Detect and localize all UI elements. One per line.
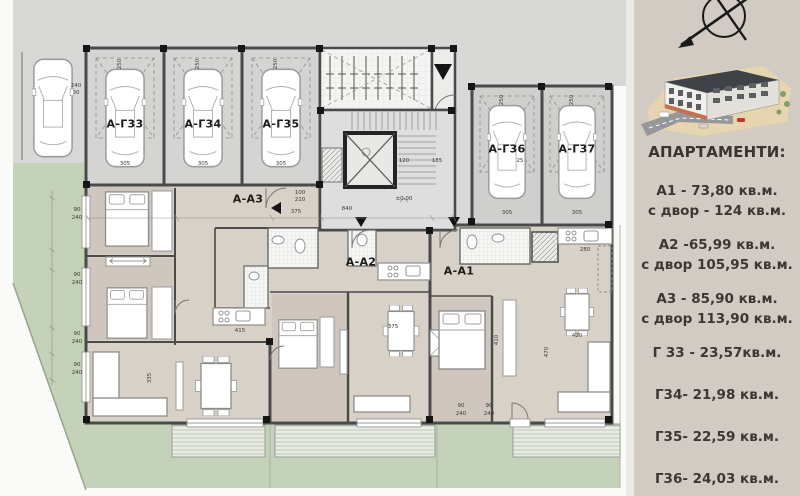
apartment-list: А1 - 73,80 кв.м.с двор - 124 кв.м.А2 -65… xyxy=(634,181,800,496)
apartment-list-item: А2 -65,99 кв.м.с двор 105,95 кв.м. xyxy=(634,235,800,275)
apartment-list-item: Г 33 - 23,57кв.м. xyxy=(634,343,800,363)
bike-room xyxy=(320,48,455,110)
tv-unit xyxy=(176,362,183,410)
sink xyxy=(272,236,284,244)
apartment-area-text: Г35- 22,59 кв.м. xyxy=(634,427,800,447)
bed xyxy=(106,192,149,246)
bed xyxy=(279,320,317,368)
apartment-area-text: А2 -65,99 кв.м. xyxy=(634,235,800,255)
tv-unit xyxy=(340,330,347,374)
info-sidebar: АПАРТАМЕНТИ: А1 - 73,80 кв.м.с двор - 12… xyxy=(634,0,800,496)
garage-car xyxy=(182,69,224,166)
dining-table xyxy=(561,288,594,336)
sofa xyxy=(558,392,610,412)
floor-plan-svg xyxy=(0,0,634,496)
wardrobe xyxy=(152,191,172,251)
toilet xyxy=(357,234,367,246)
shower xyxy=(532,232,558,262)
sofa xyxy=(93,398,167,416)
terraces xyxy=(172,425,620,457)
garage-car xyxy=(260,69,302,166)
sofa xyxy=(588,342,610,394)
dining-table xyxy=(195,356,236,416)
apartment-list-item: А1 - 73,80 кв.м.с двор - 124 кв.м. xyxy=(634,181,800,221)
storage-room xyxy=(322,148,342,182)
dining-table xyxy=(383,305,419,357)
stair-hall xyxy=(320,110,455,230)
garage-car xyxy=(104,69,146,166)
apartment-list-item: Г35- 22,59 кв.м. xyxy=(634,427,800,447)
apartments-heading: АПАРТАМЕНТИ: xyxy=(634,143,800,161)
apartment-yard-text: с двор 105,95 кв.м. xyxy=(634,255,800,275)
sink xyxy=(492,234,504,242)
apartment-area-text: Г 33 - 23,57кв.м. xyxy=(634,343,800,363)
elevator xyxy=(345,133,395,187)
wardrobe xyxy=(152,287,172,339)
apartment-list-item: Г34- 21,98 кв.м. xyxy=(634,385,800,405)
bed xyxy=(439,311,485,369)
apartment-list-item: Г36- 24,03 кв.м. xyxy=(634,469,800,489)
apartment-area-text: Г34- 21,98 кв.м. xyxy=(634,385,800,405)
apartment-area-text: А3 - 85,90 кв.м. xyxy=(634,289,800,309)
sofa xyxy=(354,396,410,412)
apartment-area-text: А1 - 73,80 кв.м. xyxy=(634,181,800,201)
apartment-yard-text: с двор 113,90 кв.м. xyxy=(634,309,800,329)
garage-block-left xyxy=(86,48,320,185)
garage-car xyxy=(557,106,597,199)
toilet xyxy=(295,239,305,253)
sink xyxy=(249,272,259,280)
wardrobe xyxy=(320,317,334,367)
floor-plan: А-Г33А-Г34А-Г35А-Г36А-Г37А-А3А-А2А-А1305… xyxy=(0,0,634,496)
apartment-yard-text: с двор - 124 кв.м. xyxy=(634,201,800,221)
bed xyxy=(107,288,147,338)
parked-car xyxy=(32,59,74,156)
page-gutter xyxy=(626,0,634,496)
building-render xyxy=(641,52,793,138)
floor-plan-page: А-Г33А-Г34А-Г35А-Г36А-Г37А-А3А-А2А-А1305… xyxy=(0,0,800,496)
toilet xyxy=(467,235,477,249)
wardrobe xyxy=(503,300,516,376)
garage-block-right xyxy=(472,86,612,225)
garage-car xyxy=(487,106,527,199)
apartment-area-text: Г36- 24,03 кв.м. xyxy=(634,469,800,489)
apartment-list-item: А3 - 85,90 кв.м.с двор 113,90 кв.м. xyxy=(634,289,800,329)
north-arrow-icon xyxy=(634,0,800,50)
